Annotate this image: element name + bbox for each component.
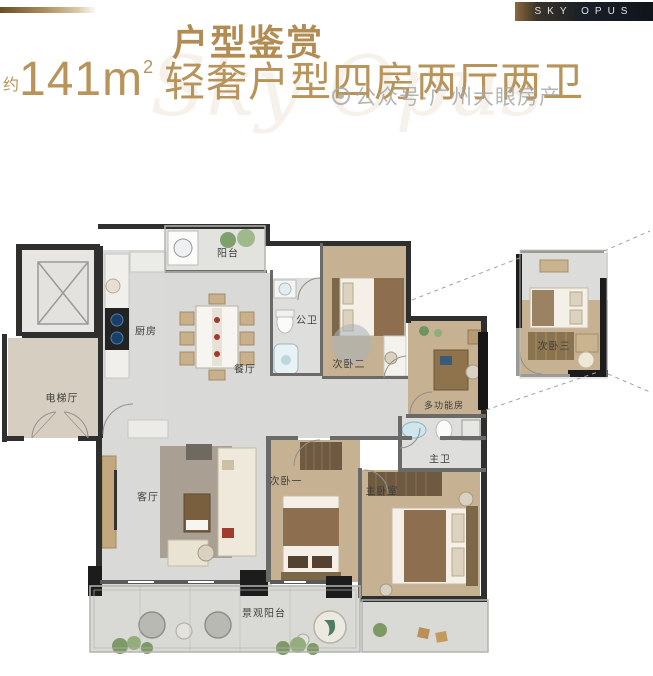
room-label-balcony-top: 阳台 (217, 245, 239, 260)
floorplan: 阳台 厨房 餐厅 公卫 次卧二 多功能房 次卧三 电梯厅 客厅 次卧一 主卫 主… (0, 0, 653, 671)
room-label-dining: 餐厅 (234, 361, 256, 376)
room-label-bedroom-3: 次卧三 (538, 338, 571, 353)
room-label-multi-function: 多功能房 (424, 399, 464, 412)
floorplan-svg (0, 0, 653, 671)
room-label-master-bedroom: 主卧室 (366, 483, 399, 498)
room-label-view-balcony: 景观阳台 (242, 605, 286, 620)
room-label-bedroom-1: 次卧一 (270, 473, 303, 488)
room-label-master-bath: 主卫 (429, 451, 451, 466)
room-label-living-room: 客厅 (137, 489, 159, 504)
room-label-kitchen: 厨房 (135, 323, 157, 338)
room-label-public-bath: 公卫 (296, 312, 318, 327)
room-label-elevator-hall: 电梯厅 (46, 390, 79, 405)
floorplan-page: { "header": { "badge": "SKY OPUS", "titl… (0, 0, 653, 671)
room-label-bedroom-2: 次卧二 (333, 356, 366, 371)
